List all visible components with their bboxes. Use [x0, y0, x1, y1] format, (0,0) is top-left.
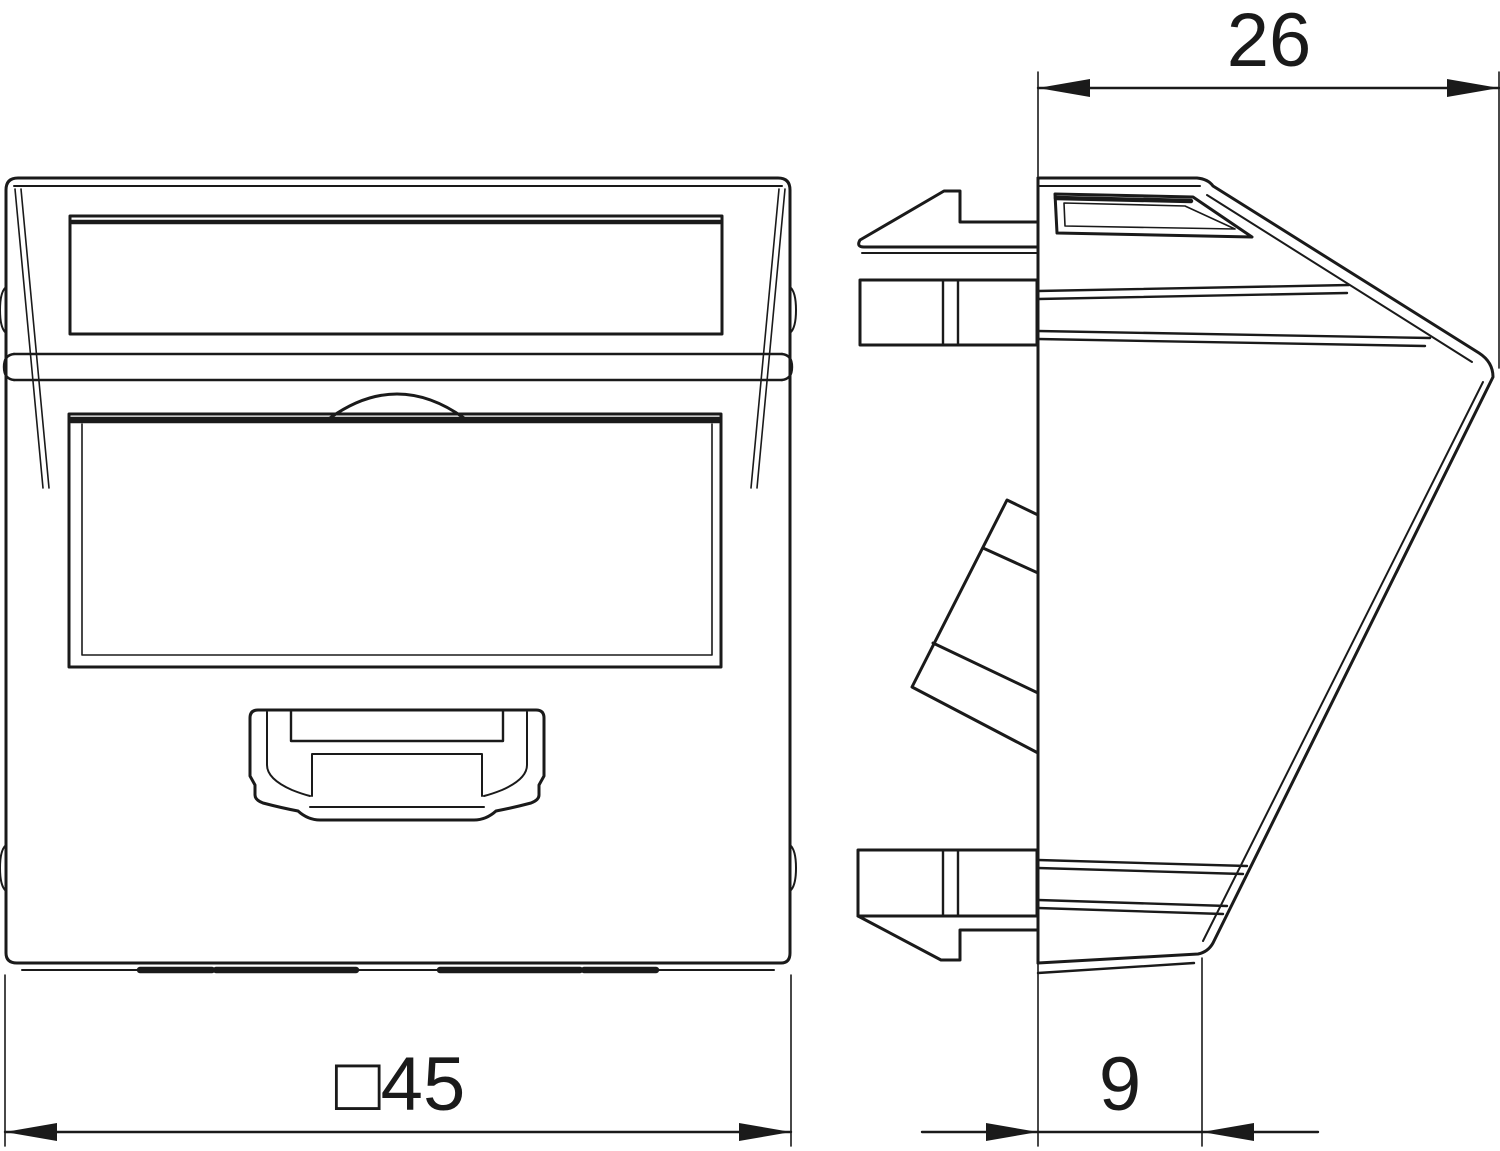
dimension-arrow	[1038, 79, 1090, 97]
front-view	[0, 178, 796, 970]
cover-bottom-second-edge	[1038, 963, 1194, 973]
label-window-side-top-edge	[1056, 198, 1191, 201]
fixing-clip-top	[860, 280, 1037, 345]
side-view	[858, 178, 1493, 973]
retaining-hook-bottom	[858, 916, 1038, 960]
front-plate-slat	[1038, 285, 1349, 299]
dimension-value: □45	[335, 1042, 465, 1127]
dimension-value: 9	[1099, 1042, 1141, 1127]
cover-flap-inner	[82, 424, 712, 655]
dimension-arrow	[1202, 1123, 1254, 1141]
dimension-front-square-size: □45	[5, 975, 791, 1146]
dimension-arrow	[5, 1123, 57, 1141]
front-plate-slat	[1038, 860, 1247, 874]
dimension-top-width: 26	[1038, 0, 1499, 368]
label-window	[70, 216, 722, 334]
cover-side-edge-left	[21, 189, 49, 488]
hdmi-socket-inner	[312, 754, 482, 796]
dimension-arrow	[739, 1123, 791, 1141]
dimension-mounting-depth: 9	[922, 958, 1318, 1146]
retaining-claw-top	[859, 191, 1038, 247]
hdmi-cutout-outline	[250, 710, 544, 820]
technical-drawing-page: 26 □45 9	[0, 0, 1500, 1151]
fixing-clip-top-dividers	[943, 280, 958, 345]
hdmi-cutout-inner	[484, 712, 527, 796]
front-plate-slat	[1038, 331, 1430, 346]
plate-outline	[6, 178, 790, 963]
fixing-clip-bottom	[858, 850, 1037, 916]
cover-flap	[69, 414, 721, 667]
keystone-module	[912, 500, 1038, 753]
hdmi-cutout-inner	[267, 712, 310, 796]
dimension-arrow	[986, 1123, 1038, 1141]
cover-side-edge-left	[15, 189, 43, 488]
cover-inner-right-edge	[1203, 382, 1483, 941]
technical-drawing-canvas: 26 □45 9	[0, 0, 1500, 1151]
dimension-value: 26	[1227, 0, 1312, 83]
fixing-clip-bottom-dividers	[943, 850, 958, 916]
front-plate-slat	[1038, 900, 1227, 914]
dimension-arrow	[1447, 79, 1499, 97]
hdmi-socket-step	[291, 711, 503, 741]
cover-side-edge-right	[757, 189, 785, 488]
cover-side-edge-right	[751, 189, 779, 488]
